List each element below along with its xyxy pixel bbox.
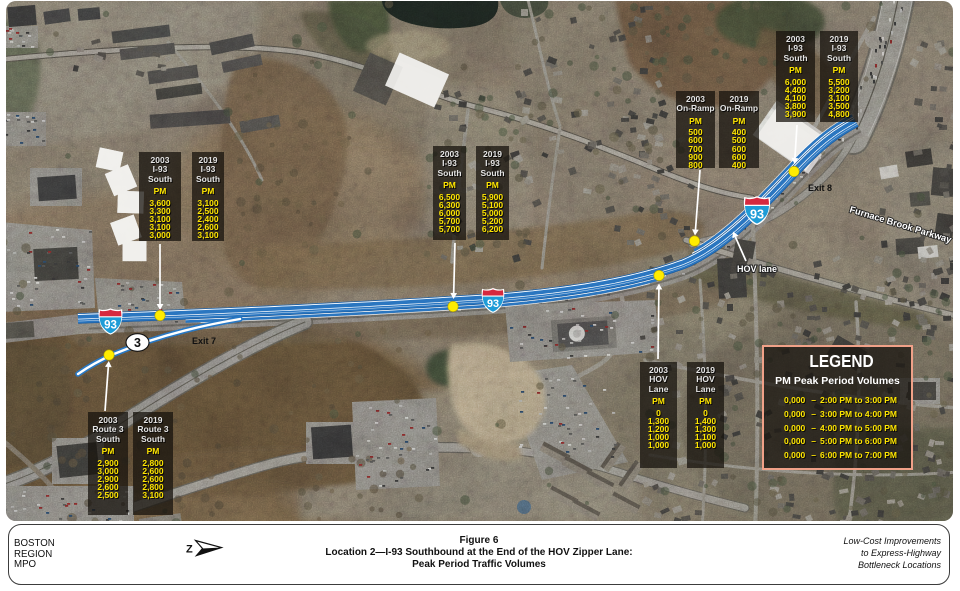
svg-text:93: 93 bbox=[104, 320, 117, 332]
svg-text:3: 3 bbox=[134, 336, 141, 350]
svg-text:93: 93 bbox=[750, 207, 764, 221]
svg-text:93: 93 bbox=[487, 298, 499, 310]
svg-text:Exit 8: Exit 8 bbox=[808, 183, 832, 193]
svg-text:Exit 7: Exit 7 bbox=[192, 336, 216, 346]
svg-text:HOV lane: HOV lane bbox=[737, 264, 777, 274]
